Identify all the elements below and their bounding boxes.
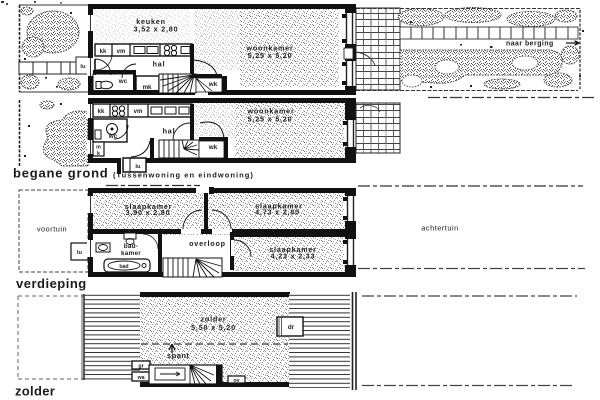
svg-text:wk: wk (208, 81, 218, 88)
svg-text:zolder: zolder (15, 384, 55, 399)
svg-text:ov: ov (233, 378, 239, 384)
svg-text:spant: spant (167, 351, 190, 360)
svg-text:dr: dr (288, 324, 295, 331)
svg-text:m: m (96, 145, 101, 151)
svg-text:3,52 x 2,80: 3,52 x 2,80 (134, 25, 179, 34)
svg-text:lu: lu (77, 250, 83, 256)
svg-text:kk: kk (98, 109, 105, 115)
svg-text:vm: vm (117, 49, 126, 55)
svg-text:voortuin: voortuin (37, 225, 67, 234)
svg-text:naar berging: naar berging (506, 41, 554, 48)
svg-text:hal: hal (153, 60, 166, 69)
svg-text:overloop: overloop (189, 239, 226, 248)
svg-text:achtertuin: achtertuin (421, 224, 458, 233)
svg-text:wa: wa (136, 375, 144, 381)
svg-text:5,25 x 5,20: 5,25 x 5,20 (248, 115, 293, 124)
svg-text:4,73 x 2,80: 4,73 x 2,80 (255, 207, 300, 216)
svg-text:gr: gr (138, 364, 143, 370)
svg-text:begane grond: begane grond (13, 166, 109, 181)
svg-text:5,50 x 5,20: 5,50 x 5,20 (191, 323, 236, 332)
svg-text:mk: mk (142, 84, 152, 91)
svg-text:wk: wk (208, 144, 218, 151)
svg-text:kk: kk (100, 49, 107, 55)
svg-text:bad: bad (119, 264, 128, 270)
svg-text:4,23 x 2,33: 4,23 x 2,33 (271, 252, 316, 261)
svg-text:lu: lu (80, 64, 86, 70)
svg-text:3,90 x 2,80: 3,90 x 2,80 (126, 208, 171, 217)
svg-text:lu: lu (135, 164, 141, 170)
svg-text:kamer: kamer (121, 250, 141, 257)
svg-text:k: k (97, 151, 100, 157)
svg-text:wc: wc (118, 78, 128, 85)
svg-text:(Tussenwoning en eindwoning): (Tussenwoning en eindwoning) (113, 171, 254, 180)
svg-text:5,25 x 5,20: 5,25 x 5,20 (248, 51, 293, 60)
svg-text:hal: hal (163, 127, 176, 136)
svg-text:vm: vm (134, 109, 143, 115)
svg-text:verdieping: verdieping (16, 276, 87, 291)
